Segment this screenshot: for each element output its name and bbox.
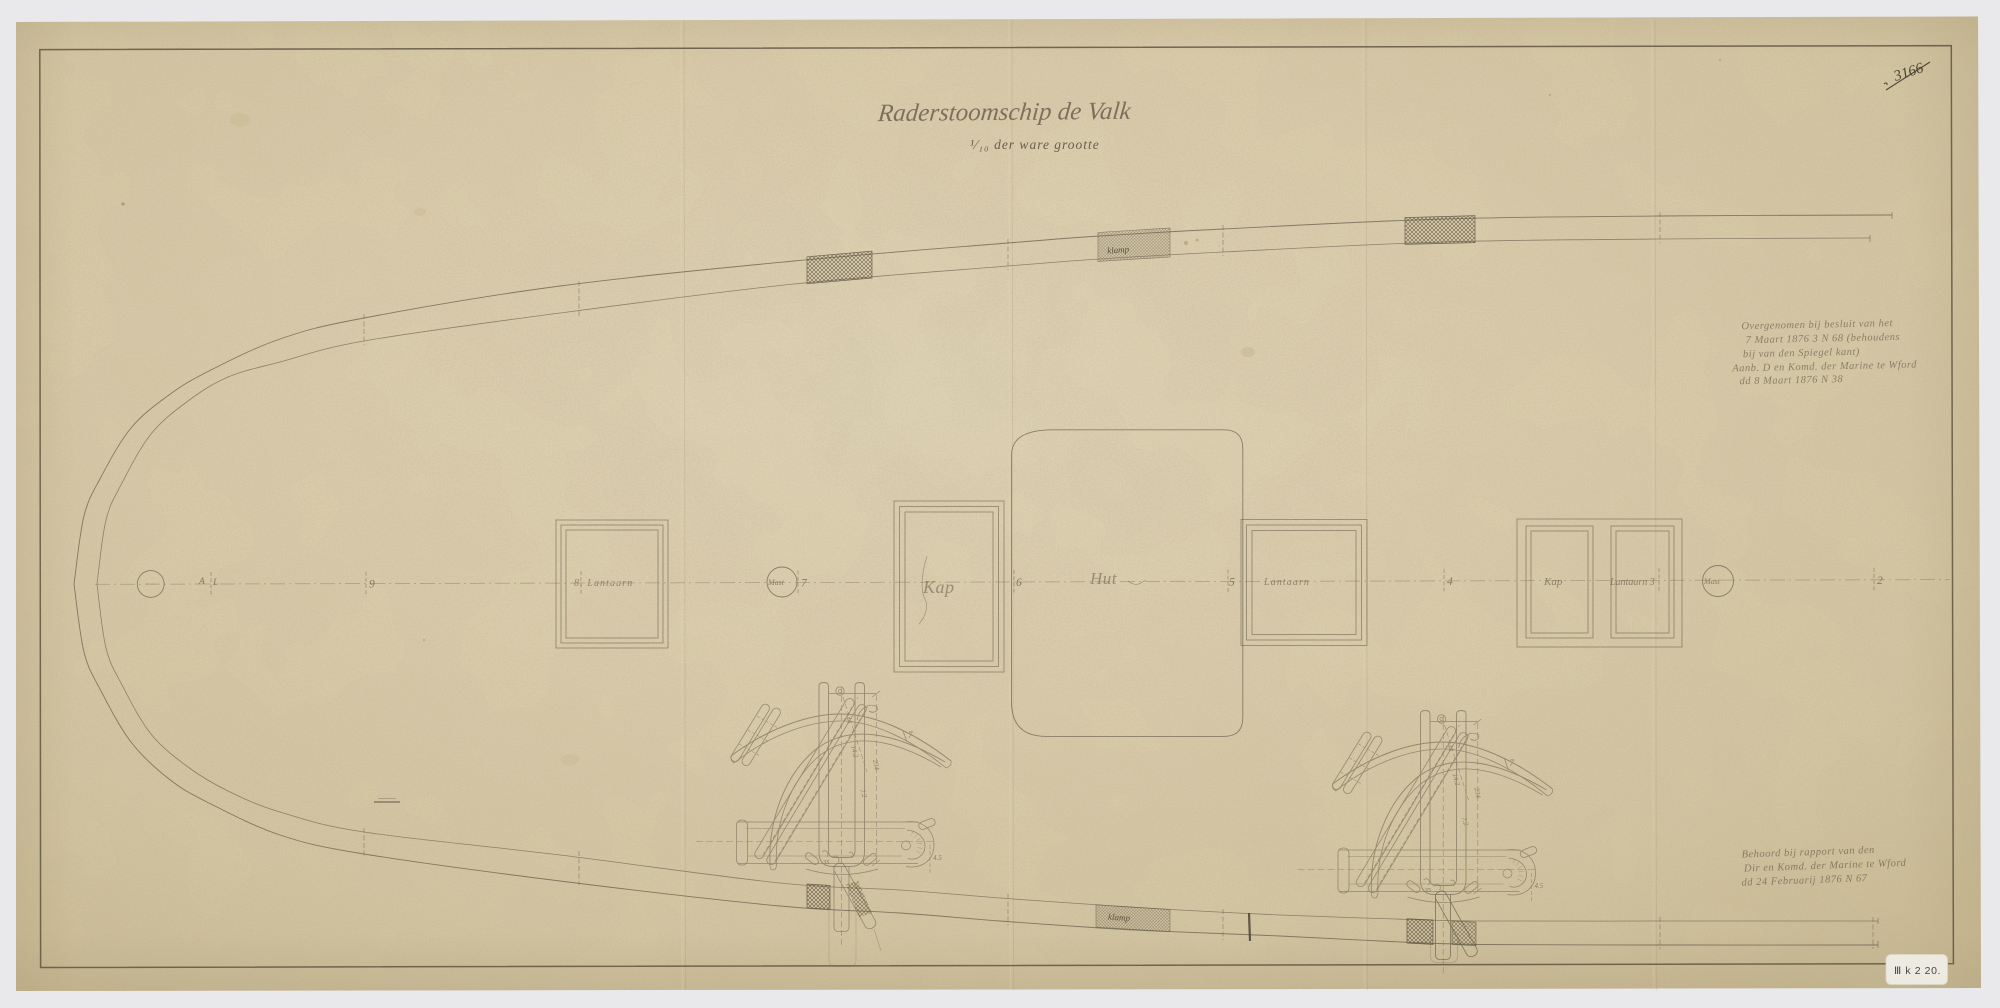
svg-text:A: A <box>198 577 205 587</box>
svg-text:8. Lantaarn: 8. Lantaarn <box>574 578 633 589</box>
svg-text:Mast: Mast <box>1703 577 1721 586</box>
svg-text:4.5: 4.5 <box>1535 882 1544 890</box>
svg-text:L: L <box>212 578 218 588</box>
svg-text:9: 9 <box>369 579 375 591</box>
svg-text:7: 7 <box>908 730 913 740</box>
svg-text:4.5: 4.5 <box>933 854 942 862</box>
svg-text:¹⁄₁₀ der ware grootte: ¹⁄₁₀ der ware grootte <box>970 137 1100 152</box>
svg-text:Kap: Kap <box>1543 576 1563 588</box>
svg-text:klamp: klamp <box>1108 912 1131 923</box>
svg-text:klamp: klamp <box>1107 244 1130 256</box>
svg-text:6: 6 <box>1016 577 1022 589</box>
svg-text:35: 35 <box>1424 887 1432 894</box>
svg-text:Ⅲ k 2 20.: Ⅲ k 2 20. <box>1894 965 1941 977</box>
svg-text:Lantaarn 3: Lantaarn 3 <box>1609 577 1655 588</box>
svg-text:Kap: Kap <box>922 577 955 597</box>
svg-text:2: 2 <box>1877 575 1883 587</box>
svg-text:7: 7 <box>1510 758 1515 768</box>
svg-text:4: 4 <box>1447 576 1453 588</box>
svg-text:dd 8 Maart 1876 N 38: dd 8 Maart 1876 N 38 <box>1739 374 1843 387</box>
svg-text:35: 35 <box>822 859 830 866</box>
svg-text:Mast: Mast <box>767 578 785 587</box>
svg-text:Lantaarn: Lantaarn <box>1263 577 1310 588</box>
svg-text:Raderstoomschip de Valk: Raderstoomschip de Valk <box>876 98 1133 127</box>
svg-text:5: 5 <box>1229 576 1235 588</box>
svg-text:Hut: Hut <box>1089 569 1118 588</box>
